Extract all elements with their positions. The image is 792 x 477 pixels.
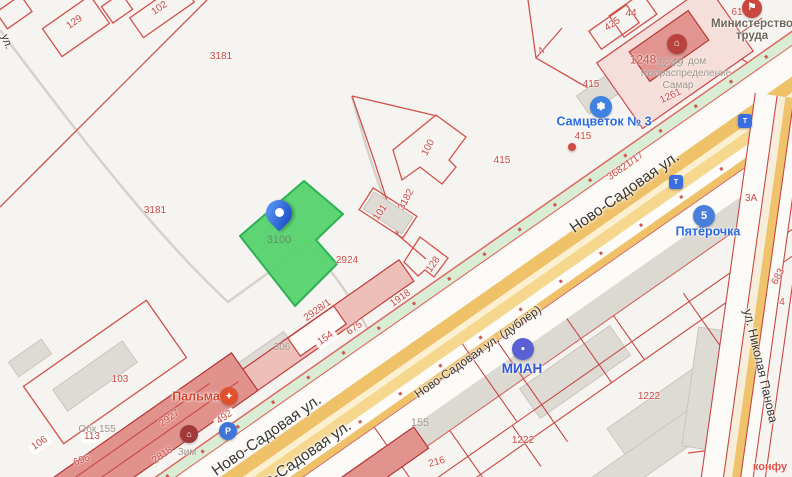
location-pin[interactable] [266, 200, 292, 236]
highlighted-parcel-label: 3100 [267, 235, 291, 247]
location-pin-dot [275, 208, 284, 217]
map-geometry-layer [0, 0, 792, 477]
map-canvas[interactable]: Ново-Садовая ул.Ново-Садовая ул. (дублёр… [0, 0, 792, 477]
access-path [0, 30, 398, 330]
